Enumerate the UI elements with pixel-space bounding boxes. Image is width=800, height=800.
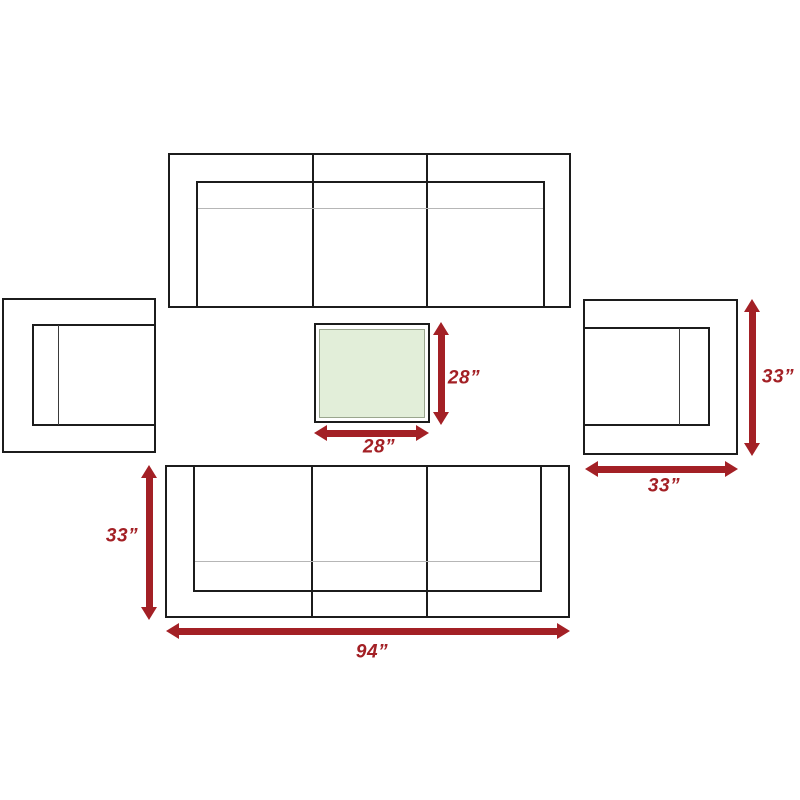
chair-right-seam-line <box>679 328 680 425</box>
arrowhead-up-icon <box>433 322 449 335</box>
dimension-arrow-chair-right-height <box>744 299 760 456</box>
sofa-top-divider-right <box>426 153 428 308</box>
arrowhead-up-icon <box>744 299 760 312</box>
chair-right-seat <box>585 327 710 426</box>
chair-left-seat <box>32 324 154 426</box>
arrowhead-left-icon <box>585 461 598 477</box>
chair-left-seam-line <box>58 325 59 425</box>
sofa-bottom-divider-right <box>426 465 428 618</box>
sofa-bottom-seam-line <box>195 561 540 562</box>
dimension-arrow-sofa-bottom-height <box>141 465 157 620</box>
dimension-arrow-table-height <box>433 322 449 425</box>
coffee-table-top <box>319 329 425 418</box>
arrowhead-up-icon <box>141 465 157 478</box>
dimension-label-sofa-bottom-width: 94” <box>356 643 388 662</box>
sofa-bottom-divider-left <box>311 465 313 618</box>
dimension-label-chair-right-width: 33” <box>648 477 680 496</box>
sofa-top-seat <box>196 181 545 308</box>
arrowhead-right-icon <box>416 425 429 441</box>
furniture-dimensions-diagram: 28” 28” 33” 33” 33” 94” <box>0 0 800 800</box>
dimension-label-sofa-bottom-height: 33” <box>106 527 138 546</box>
dimension-label-table-width: 28” <box>363 438 395 457</box>
dimension-arrow-sofa-bottom-width <box>166 623 570 639</box>
arrowhead-down-icon <box>141 607 157 620</box>
dimension-label-table-height: 28” <box>448 369 480 388</box>
sofa-top-divider-left <box>312 153 314 308</box>
dimension-label-chair-right-height: 33” <box>762 368 794 387</box>
arrowhead-right-icon <box>557 623 570 639</box>
arrowhead-left-icon <box>166 623 179 639</box>
arrowhead-down-icon <box>433 412 449 425</box>
sofa-bottom-seat <box>193 465 542 592</box>
arrowhead-down-icon <box>744 443 760 456</box>
arrowhead-left-icon <box>314 425 327 441</box>
arrowhead-right-icon <box>725 461 738 477</box>
sofa-top-seam-line <box>198 208 543 209</box>
